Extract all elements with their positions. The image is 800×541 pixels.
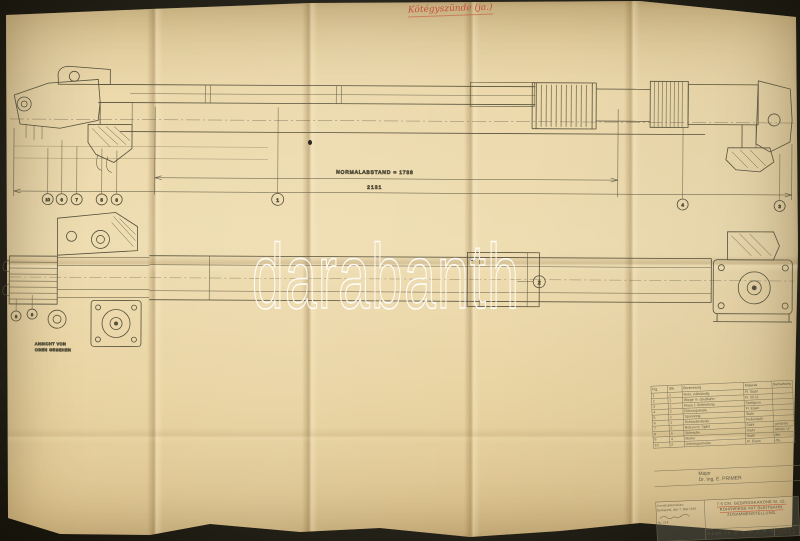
stamp-cell: Konstruktionsbüro Budapest, den 7. Mai 1… [656, 500, 706, 541]
paper-hole [470, 258, 473, 261]
parts-table: Fig. Stk. Benennung Material Bemerkung 1… [651, 380, 795, 448]
cell-fig: 10 [653, 442, 670, 448]
cell-remark: dto. [774, 437, 795, 443]
fold-crease-vertical-2 [302, 0, 318, 541]
names-block: Major Dr. Ing. E. PRIMER [654, 463, 800, 487]
cell-stk: 2 [670, 441, 685, 447]
fold-crease-vertical-3 [464, 0, 480, 541]
photo-of-blueprint: NORMALABSTAND = 1788 2131 10 6 7 5 8 1 4… [0, 0, 800, 541]
stamp-line2: Budapest, den 7. Mai 1915. [657, 506, 703, 512]
cell-material: Fl. Eisen [746, 438, 775, 445]
stamp-line3: Nr. 214. [658, 519, 704, 525]
drawing-title-lines: 7.5 CM. GEBIRGSKANONE M. 15. ROHRWIEGE M… [705, 496, 800, 528]
scale-ruler: 10 0 1 2 3 4 5 [724, 529, 775, 535]
scale-note: M. d. Zchn. [706, 532, 724, 536]
fold-crease-vertical-1 [147, 0, 163, 541]
cell-name: Unterlagscheibe [684, 439, 746, 447]
parts-table-body: 1 1 Rohr, vollständig Fl. Stahl 2 1 Wieg… [651, 387, 795, 448]
paper-hole [308, 140, 312, 145]
fold-crease-vertical-4 [624, 0, 640, 541]
title-block: Konstruktionsbüro Budapest, den 7. Mai 1… [656, 496, 800, 541]
fold-crease-horizontal-1 [0, 256, 800, 272]
drawing-number: 5011 [774, 526, 799, 536]
title-block-group: Fig. Stk. Benennung Material Bemerkung 1… [645, 377, 800, 541]
